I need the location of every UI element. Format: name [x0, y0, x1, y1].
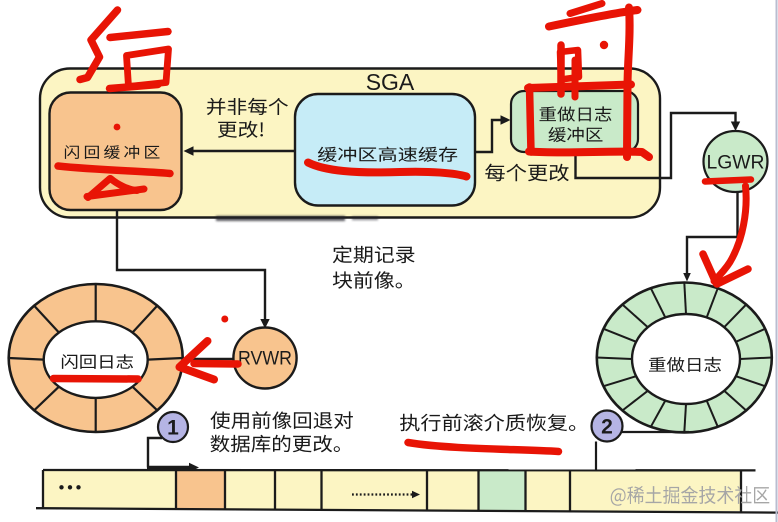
svg-text:1: 1: [167, 417, 179, 440]
svg-text:2: 2: [601, 416, 613, 439]
svg-text:RVWR: RVWR: [238, 348, 292, 370]
svg-text:LGWR: LGWR: [707, 152, 765, 174]
svg-text:SGA: SGA: [366, 69, 415, 95]
